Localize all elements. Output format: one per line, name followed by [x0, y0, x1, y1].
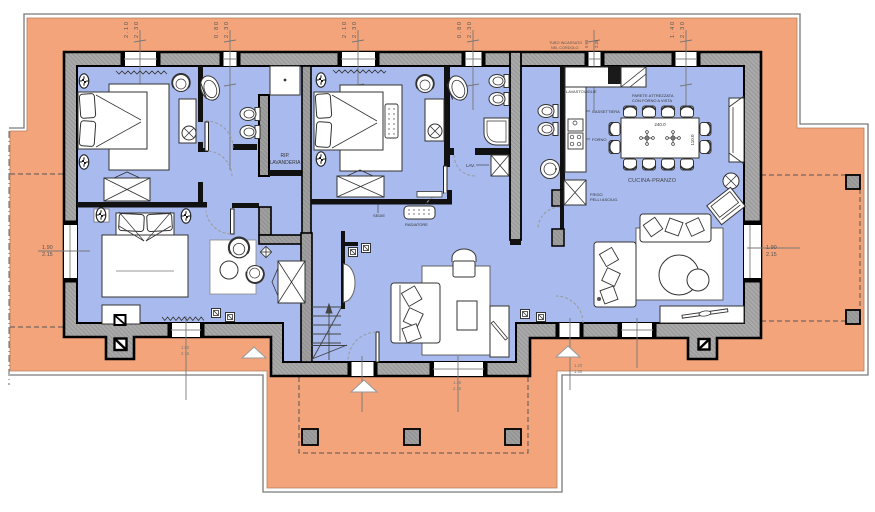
- svg-text:TUBO INCASSATO: TUBO INCASSATO: [549, 41, 582, 45]
- svg-text:0.80: 0.80: [457, 22, 463, 38]
- svg-text:0.80: 0.80: [214, 22, 220, 38]
- svg-text:2.15: 2.15: [181, 351, 190, 356]
- svg-text:CUCINA-PRANZO: CUCINA-PRANZO: [628, 178, 677, 184]
- svg-text:2.30: 2.30: [134, 22, 140, 38]
- svg-text:1.80: 1.80: [181, 345, 190, 350]
- svg-text:PELLI ASCIUG.: PELLI ASCIUG.: [590, 197, 618, 202]
- svg-text:1.40: 1.40: [670, 22, 676, 38]
- svg-text:RADIATORE: RADIATORE: [405, 222, 428, 227]
- svg-text:FORNO: FORNO: [592, 137, 606, 142]
- svg-text:2.15: 2.15: [42, 252, 53, 258]
- svg-text:CON FORNO A VISTA: CON FORNO A VISTA: [632, 98, 672, 103]
- svg-text:110.0: 110.0: [690, 134, 695, 145]
- svg-text:NEL CORDOLO: NEL CORDOLO: [551, 46, 579, 50]
- svg-text:2.30: 2.30: [594, 39, 599, 48]
- svg-text:LAV.: LAV.: [466, 163, 475, 168]
- svg-text:LAVASTOVIGLIE: LAVASTOVIGLIE: [566, 89, 597, 94]
- svg-text:2.10: 2.10: [342, 22, 348, 38]
- svg-text:CASSETTIERA: CASSETTIERA: [592, 109, 620, 114]
- svg-text:2.30: 2.30: [224, 22, 230, 38]
- svg-text:1.50: 1.50: [574, 369, 583, 374]
- svg-text:1.20: 1.20: [574, 363, 583, 368]
- svg-text:1.45: 1.45: [453, 380, 462, 385]
- svg-text:1.90: 1.90: [42, 245, 53, 251]
- svg-text:2.15: 2.15: [453, 386, 462, 391]
- svg-text:2.15: 2.15: [766, 252, 777, 258]
- svg-text:2.30: 2.30: [352, 22, 358, 38]
- svg-text:0.90: 0.90: [584, 39, 589, 48]
- svg-text:2.30: 2.30: [680, 22, 686, 38]
- svg-text:LAVANDERIA: LAVANDERIA: [270, 160, 302, 166]
- svg-text:1.90: 1.90: [766, 245, 777, 251]
- svg-text:240.0: 240.0: [654, 122, 666, 127]
- svg-text:2.30: 2.30: [467, 22, 473, 38]
- svg-text:RIP.: RIP.: [280, 153, 289, 159]
- svg-text:2.10: 2.10: [124, 22, 130, 38]
- svg-text:SEDIE: SEDIE: [373, 213, 385, 218]
